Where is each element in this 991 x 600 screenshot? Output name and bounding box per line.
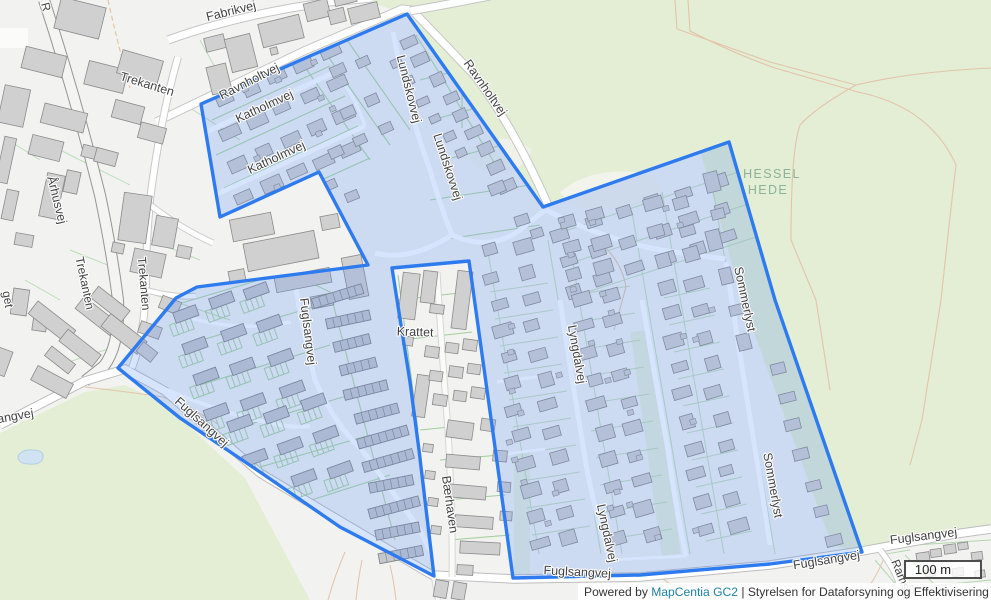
svg-text:Powered by MapCentia GC2 | Sty: Powered by MapCentia GC2 | Styrelsen for…	[584, 585, 989, 599]
svg-text:get: get	[0, 290, 16, 310]
svg-text:HESSEL: HESSEL	[743, 167, 801, 181]
svg-text:Krattet: Krattet	[396, 324, 434, 339]
svg-text:HEDE: HEDE	[748, 183, 788, 197]
svg-text:100 m: 100 m	[915, 562, 951, 577]
